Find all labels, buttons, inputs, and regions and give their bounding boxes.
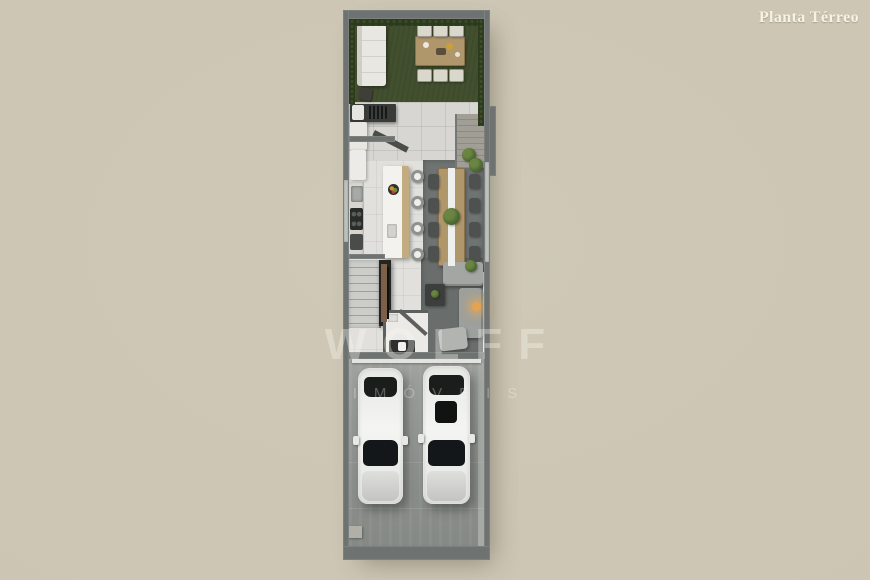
car-left <box>358 368 403 504</box>
table-cup <box>455 52 460 57</box>
car-mirror <box>469 434 475 443</box>
garage-door-track <box>352 359 481 363</box>
dining-chair <box>469 198 480 213</box>
tv-screen <box>387 267 389 319</box>
car-sunroof <box>435 401 457 423</box>
dining-chair <box>469 222 480 237</box>
table-tray <box>436 48 446 55</box>
bathroom-sink <box>388 314 398 322</box>
wall-segment-patio <box>349 136 395 142</box>
outdoor-sofa <box>357 24 386 86</box>
toilet <box>398 342 406 351</box>
window-kitchen <box>344 180 348 242</box>
bar-stool <box>411 248 424 261</box>
corner-plant <box>469 158 483 172</box>
kitchen-sink <box>351 186 363 202</box>
wall-bottom <box>343 546 490 560</box>
dining-chair <box>428 198 439 213</box>
hedge-left <box>349 19 355 104</box>
car-right <box>423 366 470 504</box>
wall-top <box>343 10 490 19</box>
bar-stool <box>411 222 424 235</box>
outdoor-side-table <box>358 87 373 101</box>
render-canvas: WOLFF IMÓVEIS Planta Térreo <box>0 0 870 580</box>
garage-back-wall <box>349 352 484 359</box>
curb-step <box>347 526 362 538</box>
window-dining <box>485 162 489 262</box>
garden-chair <box>433 69 448 82</box>
cooktop <box>350 208 363 230</box>
car-hood <box>427 471 466 501</box>
refrigerator <box>350 150 366 180</box>
floor-lamp <box>472 302 481 311</box>
car-windshield <box>363 440 398 466</box>
floor-plan <box>343 10 490 560</box>
dining-chair <box>428 246 439 261</box>
staircase <box>349 260 381 328</box>
car-rear-window <box>364 377 397 397</box>
grill-prep-box <box>352 105 364 120</box>
car-mirror <box>353 436 359 445</box>
fruit-bowl <box>388 184 399 195</box>
table-plate <box>423 42 429 48</box>
car-mirror <box>418 434 424 443</box>
plan-title-label: Planta Térreo <box>759 9 859 27</box>
wall-right <box>484 10 490 560</box>
bar-stool <box>411 170 424 183</box>
bbq-grill <box>367 106 387 119</box>
wall-left <box>343 10 349 560</box>
floor-plant <box>465 260 477 272</box>
armchair <box>438 326 468 351</box>
island-sink <box>387 224 397 238</box>
car-hood <box>362 471 399 501</box>
car-rear-window <box>429 375 464 395</box>
table-food <box>446 43 453 50</box>
dining-chair <box>428 222 439 237</box>
dining-chair <box>469 246 480 261</box>
bar-stool <box>411 196 424 209</box>
dining-chair <box>428 174 439 189</box>
oven <box>350 234 363 250</box>
wall-segment-stairs <box>349 254 385 259</box>
car-mirror <box>402 436 408 445</box>
car-windshield <box>428 440 465 466</box>
expansion-joint <box>349 508 484 509</box>
dining-chair <box>469 174 480 189</box>
table-centerpiece-plant <box>443 208 460 225</box>
garden-chair <box>417 69 432 82</box>
island-wood-side <box>402 166 409 258</box>
coffee-table-plant <box>431 290 439 298</box>
hedge-top <box>349 19 484 26</box>
garden-chair <box>449 69 464 82</box>
